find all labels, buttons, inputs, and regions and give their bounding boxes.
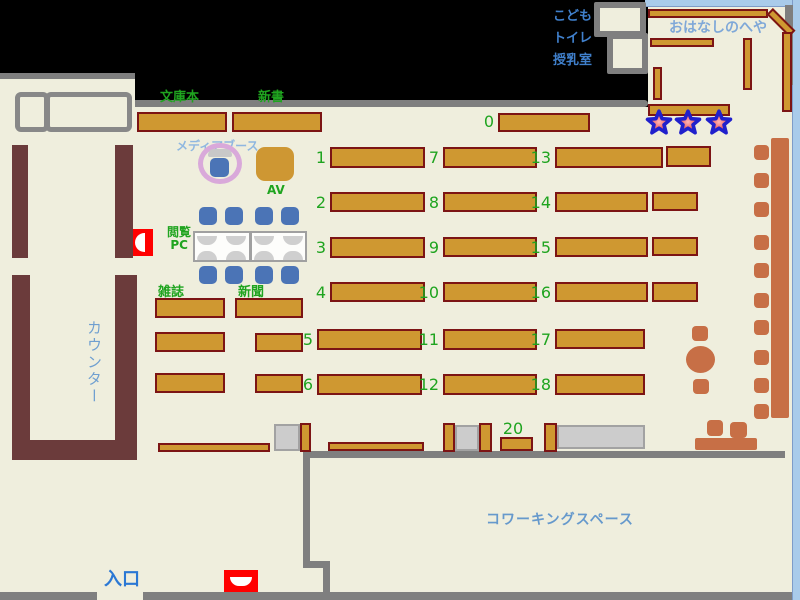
round-table-seat-bottom bbox=[693, 379, 709, 394]
av-label: AV bbox=[267, 183, 285, 197]
cushion-9 bbox=[754, 378, 769, 393]
shelf-17-number: 17 bbox=[525, 330, 551, 349]
shelf-15 bbox=[555, 237, 648, 257]
shelf-13-number: 13 bbox=[525, 148, 551, 167]
cushion-7 bbox=[754, 320, 769, 335]
shelf-4-number: 4 bbox=[300, 283, 326, 302]
story-shelf-2 bbox=[650, 38, 714, 47]
counter-bottom bbox=[12, 440, 137, 460]
wall-coworking-top bbox=[303, 451, 785, 458]
bottom-gray-block-2 bbox=[455, 425, 479, 451]
wall-bottom-left bbox=[0, 592, 97, 600]
staff-desk-small bbox=[15, 92, 49, 132]
kids-toilet-room-1 bbox=[594, 2, 646, 37]
reading-pc-label-line2: PC bbox=[158, 239, 191, 252]
story-shelf-right-vert bbox=[743, 38, 752, 90]
cushion-5 bbox=[754, 263, 769, 278]
shelf-0-number: 0 bbox=[468, 112, 494, 131]
frame-right bbox=[792, 0, 800, 600]
bottom-thin-shelf-mid bbox=[328, 442, 424, 451]
star-icon-1 bbox=[644, 108, 674, 138]
kids-toilet-label: こども トイレ 授乳室 bbox=[532, 6, 592, 72]
wall-staff-room bbox=[0, 73, 135, 79]
shelf-15-number: 15 bbox=[525, 238, 551, 257]
pc-chair-top-4 bbox=[281, 207, 299, 225]
shelf-8-number: 8 bbox=[413, 193, 439, 212]
shelf-12 bbox=[443, 374, 537, 395]
shelf-row1-extra bbox=[666, 146, 711, 167]
shelf-8 bbox=[443, 192, 537, 212]
shelf-20 bbox=[500, 437, 533, 451]
staff-desk-large bbox=[45, 92, 132, 132]
kids-bench bbox=[695, 438, 757, 450]
shelf-new-books bbox=[232, 112, 322, 132]
cushion-8 bbox=[754, 350, 769, 365]
shelf-1 bbox=[330, 147, 425, 168]
wall-coworking-left bbox=[303, 451, 310, 568]
new-books-label: 新書 bbox=[258, 86, 284, 105]
pc-monitor-5 bbox=[197, 251, 217, 260]
shelf-2-number: 2 bbox=[300, 193, 326, 212]
paperbacks-label: 文庫本 bbox=[160, 86, 199, 105]
magazine-shelf-1 bbox=[155, 298, 225, 318]
pillar-left bbox=[12, 145, 28, 258]
bottom-vert-shelf-2 bbox=[443, 423, 455, 452]
round-table-seat-top bbox=[692, 326, 708, 341]
pc-chair-bottom-3 bbox=[255, 266, 273, 284]
bottom-gray-block-1 bbox=[274, 424, 300, 451]
reading-pc-label: 閲覧 PC bbox=[158, 226, 191, 252]
story-room-label: おはなしのへや bbox=[669, 17, 767, 37]
library-floor-map: こども トイレ 授乳室 文庫本 新書 0 1 7 13 2 8 14 3 9 1… bbox=[0, 0, 800, 600]
story-shelf-far-right-vert bbox=[782, 32, 792, 112]
av-booth bbox=[256, 147, 294, 181]
shelf-18 bbox=[555, 374, 645, 395]
story-shelf-top bbox=[648, 9, 768, 18]
magazine-shelf-2 bbox=[155, 332, 225, 352]
bottom-thin-shelf-left bbox=[158, 443, 270, 452]
kids-toilet-room-2 bbox=[607, 33, 648, 74]
shelf-10 bbox=[443, 282, 537, 302]
shelf-13 bbox=[555, 147, 663, 168]
coworking-label: コワーキングスペース bbox=[486, 509, 634, 529]
wall-bottom-right bbox=[143, 592, 792, 600]
media-booth-desk bbox=[208, 149, 232, 157]
shelf-18-number: 18 bbox=[525, 375, 551, 394]
cushion-4 bbox=[754, 235, 769, 250]
pc-monitor-8 bbox=[283, 251, 303, 260]
wall-top-long bbox=[135, 100, 648, 107]
newspaper-shelf-1 bbox=[235, 298, 303, 318]
shelf-paperbacks bbox=[137, 112, 227, 132]
shelf-11-number: 11 bbox=[413, 330, 439, 349]
shelf-7-number: 7 bbox=[413, 148, 439, 167]
shelf-7 bbox=[443, 147, 537, 168]
shelf-0 bbox=[498, 113, 590, 132]
cushion-10 bbox=[754, 404, 769, 419]
shelf-10-number: 10 bbox=[413, 283, 439, 302]
shelf-16-number: 16 bbox=[525, 283, 551, 302]
counter-right bbox=[115, 275, 137, 443]
magazine-shelf-3 bbox=[155, 373, 225, 393]
pc-chair-bottom-4 bbox=[281, 266, 299, 284]
pillar-right bbox=[115, 145, 133, 258]
shelf-16 bbox=[555, 282, 648, 302]
pc-chair-top-3 bbox=[255, 207, 273, 225]
cushion-6 bbox=[754, 293, 769, 308]
wall-coworking-step-v bbox=[323, 561, 330, 595]
shelf-2 bbox=[330, 192, 425, 212]
counter-label: カウンター bbox=[84, 320, 105, 405]
shelf-3 bbox=[330, 237, 425, 258]
bottom-vert-shelf-1 bbox=[300, 423, 311, 452]
shelf-4 bbox=[330, 282, 425, 302]
frame-top bbox=[645, 0, 800, 7]
shelf-11 bbox=[443, 329, 537, 350]
shelf-9 bbox=[443, 237, 537, 257]
kids-stool-2 bbox=[730, 422, 747, 438]
shelf-row2-extra bbox=[652, 192, 698, 211]
pc-monitor-7 bbox=[254, 251, 274, 260]
star-icon-3 bbox=[704, 108, 734, 138]
window-bench bbox=[771, 138, 789, 418]
shelf-14 bbox=[555, 192, 648, 212]
star-icon-2 bbox=[673, 108, 703, 138]
shelf-9-number: 9 bbox=[413, 238, 439, 257]
pc-chair-bottom-2 bbox=[225, 266, 243, 284]
newspaper-shelf-3 bbox=[255, 374, 303, 393]
bottom-vert-shelf-3 bbox=[479, 423, 492, 452]
pc-chair-top-2 bbox=[225, 207, 243, 225]
kids-label-line3: 授乳室 bbox=[532, 50, 592, 72]
bottom-vert-shelf-4 bbox=[544, 423, 557, 452]
shelf-1-number: 1 bbox=[300, 148, 326, 167]
round-table bbox=[686, 346, 715, 373]
shelf-12-number: 12 bbox=[413, 375, 439, 394]
shelf-row4-extra bbox=[652, 282, 698, 302]
shelf-row3-extra bbox=[652, 237, 698, 256]
entrance-label: 入口 bbox=[104, 565, 140, 591]
cushion-1 bbox=[754, 145, 769, 160]
media-booth-chair bbox=[210, 158, 229, 177]
counter-left bbox=[12, 275, 30, 460]
shelf-5 bbox=[317, 329, 422, 350]
cushion-2 bbox=[754, 173, 769, 188]
bottom-gray-block-3 bbox=[557, 425, 645, 449]
shelf-14-number: 14 bbox=[525, 193, 551, 212]
story-shelf-left-vert bbox=[653, 67, 662, 100]
kids-stool-1 bbox=[707, 420, 723, 436]
shelf-6 bbox=[317, 374, 422, 395]
kids-label-line1: こども bbox=[532, 6, 592, 28]
pc-monitor-6 bbox=[226, 251, 246, 260]
shelf-20-number: 20 bbox=[498, 419, 528, 438]
newspaper-shelf-2 bbox=[255, 333, 303, 352]
kids-label-line2: トイレ bbox=[532, 28, 592, 50]
cushion-3 bbox=[754, 202, 769, 217]
shelf-17 bbox=[555, 329, 645, 349]
pc-chair-bottom-1 bbox=[199, 266, 217, 284]
pc-chair-top-1 bbox=[199, 207, 217, 225]
